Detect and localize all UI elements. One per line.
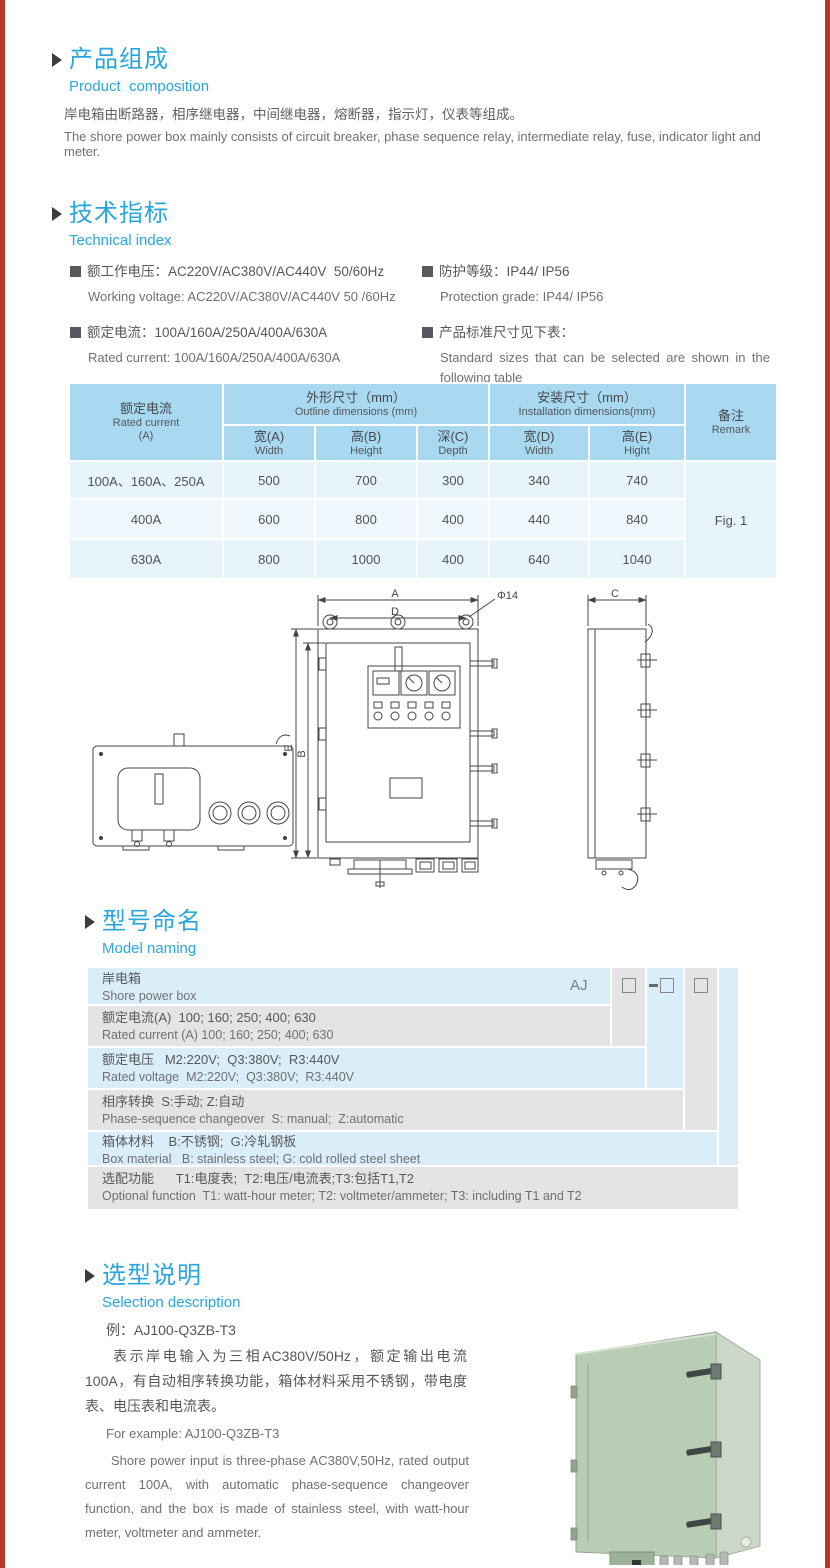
naming-title-en: Model naming (102, 940, 202, 957)
header-cn: 额定电流 (70, 401, 222, 417)
left-red-edge-bar (0, 0, 5, 1568)
model-code-box-2 (660, 978, 674, 993)
selection-desc-en: Shore power input is three-phase AC380V,… (85, 1449, 469, 1545)
selection-desc-cn: 表示岸电输入为三相AC380V/50Hz，额定输出电流100A，有自动相序转换功… (85, 1344, 467, 1419)
spec-rated-current: 额定电流：100A/160A/250A/400A/630A Rated curr… (70, 321, 415, 368)
col-header-width-d: 宽(D) Width (490, 426, 588, 460)
section-arrow-icon (85, 1269, 95, 1283)
dim-label-e: E (283, 744, 295, 751)
spec-column-right: 防护等级：IP44/ IP56 Protection grade: IP44/ … (422, 260, 770, 402)
drawing-side-view (588, 624, 657, 890)
selection-heading: 选型说明 Selection description (85, 1262, 240, 1311)
catalog-page: 产品组成 Product composition 岸电箱由断路器，相序继电器，中… (0, 0, 830, 1568)
naming-row-cn: 岸电箱 (102, 970, 610, 988)
naming-heading: 型号命名 Model naming (85, 908, 202, 957)
spec-protection-grade: 防护等级：IP44/ IP56 Protection grade: IP44/ … (422, 260, 770, 307)
composition-heading: 产品组成 Product composition (52, 46, 209, 95)
table-row: 400A 600 800 400 440 840 (70, 500, 776, 538)
square-bullet-icon (422, 327, 433, 338)
naming-row-cn: 相序转换 S:手动; Z:自动 (102, 1093, 717, 1111)
naming-row-box-material: 箱体材料 B:不锈钢; G:冷轧钢板 Box material B: stain… (88, 1132, 738, 1165)
composition-desc-en: The shore power box mainly consists of c… (64, 129, 774, 159)
cell-value: 740 (590, 462, 684, 498)
spec-en-text: Working voltage: AC220V/AC380V/AC440V 50… (88, 287, 415, 307)
technical-title-en: Technical index (69, 232, 172, 249)
cell-value: 440 (490, 500, 588, 538)
cell-value: 800 (224, 540, 314, 578)
naming-row-rated-voltage: 额定电压 M2:220V; Q3:380V; R3:440V Rated vol… (88, 1048, 683, 1088)
naming-row-phase-sequence: 相序转换 S:手动; Z:自动 Phase-sequence changeove… (88, 1090, 717, 1130)
col-header-outline: 外形尺寸（mm） Outline dimensions (mm) (224, 384, 488, 424)
cell-current: 400A (70, 500, 222, 538)
naming-row-optional-function: 选配功能 T1:电度表; T2:电压/电流表;T3:包括T1,T2 Option… (88, 1167, 738, 1209)
spec-column-left: 额工作电压：AC220V/AC380V/AC440V 50/60Hz Worki… (70, 260, 415, 382)
naming-row-en: Phase-sequence changeover S: manual; Z:a… (102, 1111, 717, 1127)
dim-label-a: A (391, 588, 399, 600)
cell-value: 640 (490, 540, 588, 578)
naming-row-cn: 箱体材料 B:不锈钢; G:冷轧钢板 (102, 1133, 738, 1151)
cell-value: 500 (224, 462, 314, 498)
header-en: Installation dimensions(mm) (490, 406, 684, 419)
spec-en-text: Rated current: 100A/160A/250A/400A/630A (88, 348, 415, 368)
selection-example-cn: 例：AJ100-Q3ZB-T3 (106, 1320, 236, 1340)
header-cn: 深(C) (418, 429, 488, 445)
col-header-height-b: 高(B) Height (316, 426, 416, 460)
cell-value: 1040 (590, 540, 684, 578)
cell-value: 700 (316, 462, 416, 498)
header-unit: (A) (70, 430, 222, 443)
col-header-height-e: 高(E) Hight (590, 426, 684, 460)
col-header-remark: 备注 Remark (686, 384, 776, 460)
header-cn: 宽(A) (224, 429, 314, 445)
spec-cn-text: 防护等级：IP44/ IP56 (439, 264, 570, 279)
technical-heading: 技术指标 Technical index (52, 200, 172, 249)
dim-label-b: B (296, 750, 308, 757)
spec-cn-text: 额定电流：100A/160A/250A/400A/630A (87, 325, 327, 340)
selection-example-en: For example: AJ100-Q3ZB-T3 (106, 1426, 279, 1441)
dimension-lines (291, 595, 646, 858)
table-row: 100A、160A、250A 500 700 300 340 740 Fig. … (70, 462, 776, 498)
header-en: Remark (686, 424, 776, 437)
header-cn: 高(B) (316, 429, 416, 445)
model-naming-diagram: 岸电箱 Shore power box 额定电流(A) 100; 160; 25… (88, 968, 748, 1214)
section-arrow-icon (52, 207, 62, 221)
naming-row-en: Shore power box (102, 988, 610, 1004)
spec-standard-sizes: 产品标准尺寸见下表： Standard sizes that can be se… (422, 321, 770, 388)
drawing-bottom-view (93, 734, 293, 850)
header-en: Width (490, 445, 588, 458)
cell-value: 840 (590, 500, 684, 538)
dimension-drawing: A D Φ14 E B C (68, 586, 762, 896)
selection-title-en: Selection description (102, 1294, 240, 1311)
model-code-dash (649, 984, 658, 987)
header-en: Outline dimensions (mm) (224, 406, 488, 419)
header-cn: 备注 (686, 408, 776, 424)
code-column-4 (717, 968, 738, 1165)
naming-row-en: Box material B: stainless steel; G: cold… (102, 1151, 738, 1167)
col-header-depth-c: 深(C) Depth (418, 426, 488, 460)
header-cn: 安装尺寸（mm） (490, 390, 684, 406)
cell-value: 300 (418, 462, 488, 498)
selection-title-cn: 选型说明 (102, 1262, 240, 1290)
composition-title-en: Product composition (69, 78, 209, 95)
cell-remark: Fig. 1 (686, 462, 776, 578)
model-code-box-1 (622, 978, 636, 993)
cell-value: 340 (490, 462, 588, 498)
col-header-rated-current: 额定电流 Rated current (A) (70, 384, 222, 460)
header-en: Width (224, 445, 314, 458)
header-en: Height (316, 445, 416, 458)
right-red-edge-bar (825, 0, 830, 1568)
square-bullet-icon (70, 266, 81, 277)
drawing-front-view (318, 615, 497, 888)
header-cn: 高(E) (590, 429, 684, 445)
section-arrow-icon (52, 53, 62, 67)
cell-value: 800 (316, 500, 416, 538)
col-header-width-a: 宽(A) Width (224, 426, 314, 460)
dim-label-d: D (391, 606, 399, 618)
col-header-installation: 安装尺寸（mm） Installation dimensions(mm) (490, 384, 684, 424)
naming-row-en: Rated voltage M2:220V; Q3:380V; R3:440V (102, 1069, 683, 1085)
header-cn: 外形尺寸（mm） (224, 390, 488, 406)
cell-value: 1000 (316, 540, 416, 578)
cell-current: 630A (70, 540, 222, 578)
table-row: 630A 800 1000 400 640 1040 (70, 540, 776, 578)
square-bullet-icon (422, 266, 433, 277)
naming-row-rated-current: 额定电流(A) 100; 160; 250; 400; 630 Rated cu… (88, 1006, 645, 1046)
naming-row-en: Optional function T1: watt-hour meter; T… (102, 1188, 738, 1204)
product-photo-shore-power-box (548, 1310, 803, 1565)
naming-row-cn: 额定电流(A) 100; 160; 250; 400; 630 (102, 1009, 645, 1027)
spec-cn-text: 额工作电压：AC220V/AC380V/AC440V 50/60Hz (87, 264, 384, 279)
composition-desc-cn: 岸电箱由断路器，相序继电器，中间继电器，熔断器，指示灯，仪表等组成。 (64, 103, 764, 123)
spec-working-voltage: 额工作电压：AC220V/AC380V/AC440V 50/60Hz Worki… (70, 260, 415, 307)
header-cn: 宽(D) (490, 429, 588, 445)
naming-title-cn: 型号命名 (102, 908, 202, 936)
model-code-box-3 (694, 978, 708, 993)
size-table: 额定电流 Rated current (A) 外形尺寸（mm） Outline … (68, 382, 778, 580)
naming-row-cn: 额定电压 M2:220V; Q3:380V; R3:440V (102, 1051, 683, 1069)
header-en: Rated current (70, 417, 222, 430)
spec-en-text: Protection grade: IP44/ IP56 (440, 287, 770, 307)
model-prefix: AJ (570, 977, 588, 994)
section-arrow-icon (85, 915, 95, 929)
naming-row-en: Rated current (A) 100; 160; 250; 400; 63… (102, 1027, 645, 1043)
cell-value: 400 (418, 500, 488, 538)
composition-title-cn: 产品组成 (69, 46, 209, 74)
naming-row-product: 岸电箱 Shore power box (88, 968, 610, 1004)
dim-label-c: C (611, 588, 619, 600)
header-en: Depth (418, 445, 488, 458)
cell-value: 400 (418, 540, 488, 578)
naming-row-cn: 选配功能 T1:电度表; T2:电压/电流表;T3:包括T1,T2 (102, 1170, 738, 1188)
technical-title-cn: 技术指标 (69, 200, 172, 228)
spec-cn-text: 产品标准尺寸见下表： (439, 325, 574, 340)
square-bullet-icon (70, 327, 81, 338)
cell-current: 100A、160A、250A (70, 462, 222, 498)
cell-value: 600 (224, 500, 314, 538)
hole-label-phi14: Φ14 (497, 590, 518, 602)
header-en: Hight (590, 445, 684, 458)
